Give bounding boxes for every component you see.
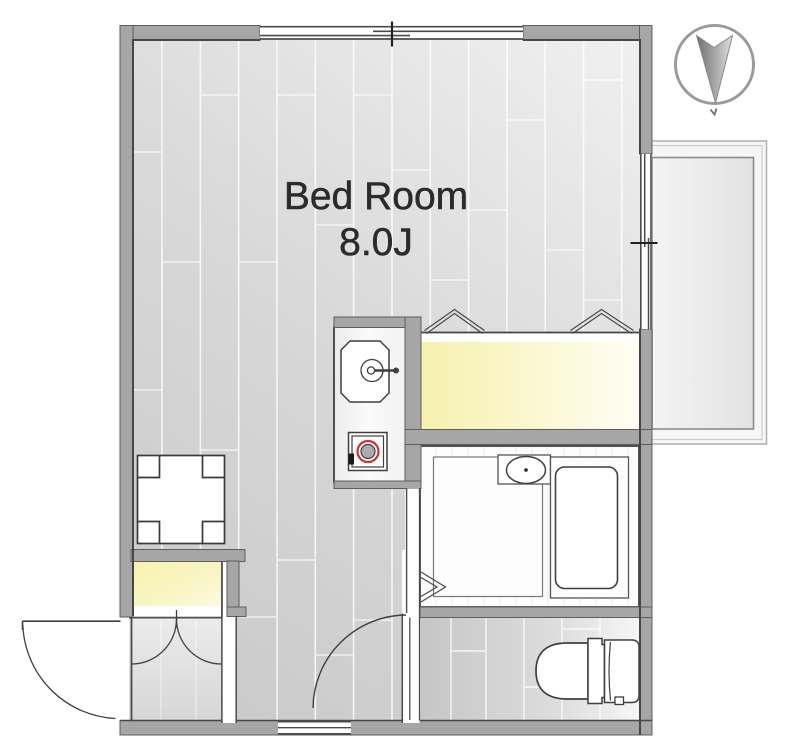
svg-text:8.0J: 8.0J: [339, 221, 413, 264]
svg-text:Bed Room: Bed Room: [284, 175, 468, 218]
